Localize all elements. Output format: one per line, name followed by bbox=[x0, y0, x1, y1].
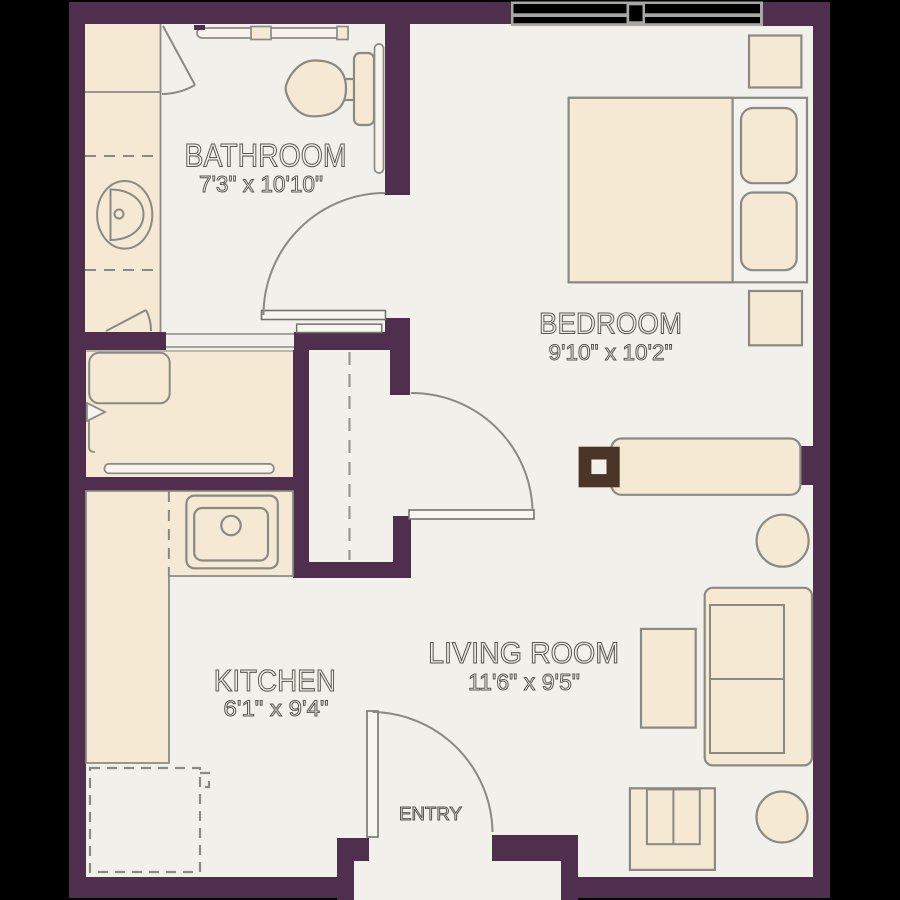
svg-text:ENTRY: ENTRY bbox=[399, 804, 462, 824]
svg-text:7'3" x 10'10": 7'3" x 10'10" bbox=[199, 171, 323, 197]
svg-text:6'1" x 9'4": 6'1" x 9'4" bbox=[224, 696, 329, 721]
svg-text:LIVING ROOM: LIVING ROOM bbox=[428, 637, 619, 670]
svg-text:11'6" x 9'5": 11'6" x 9'5" bbox=[468, 669, 580, 695]
svg-text:9'10" x 10'2": 9'10" x 10'2" bbox=[549, 340, 673, 365]
svg-text:KITCHEN: KITCHEN bbox=[214, 663, 336, 698]
svg-text:BEDROOM: BEDROOM bbox=[539, 308, 682, 341]
svg-text:BATHROOM: BATHROOM bbox=[185, 138, 347, 174]
